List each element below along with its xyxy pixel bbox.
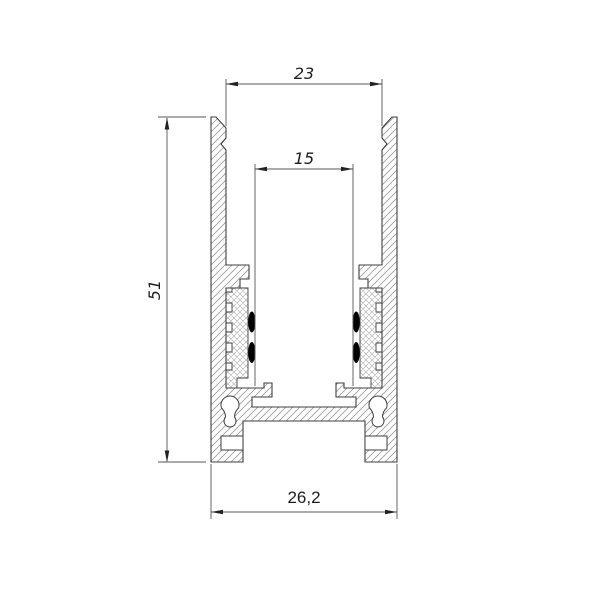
- dimension-bottom-width: 26,2: [211, 464, 397, 519]
- gasket-insert-left: [226, 288, 248, 388]
- gasket-insert-right: [360, 288, 382, 388]
- arrowhead-right-icon: [385, 510, 397, 515]
- profile-cross-section-drawing: 23 15 51 26,2: [0, 0, 600, 600]
- arrowhead-up-icon: [165, 118, 170, 130]
- technical-drawing-page: 23 15 51 26,2: [0, 0, 600, 600]
- dimension-height: 51: [145, 117, 206, 463]
- dim-label-bottom-width: 26,2: [287, 488, 320, 507]
- dim-label-top-width: 23: [294, 64, 314, 83]
- foot-notch-left: [221, 436, 243, 450]
- arrowhead-down-icon: [165, 451, 170, 463]
- dimension-slot-width: 15: [255, 149, 353, 386]
- arrowhead-right-icon: [370, 82, 382, 87]
- dimension-top-width: 23: [226, 64, 382, 126]
- arrowhead-left-icon: [211, 510, 223, 515]
- keyhole-screw-channel-left: [221, 396, 239, 427]
- dim-label-height: 51: [145, 280, 164, 300]
- clamp-pad-left-lower: [248, 342, 255, 363]
- arrowhead-left-icon: [226, 82, 238, 87]
- foot-notch-right: [365, 436, 387, 450]
- arrowhead-right-icon: [341, 167, 353, 172]
- dim-label-slot-width: 15: [294, 149, 314, 168]
- clamp-pad-right-upper: [353, 312, 360, 333]
- arrowhead-left-icon: [255, 167, 267, 172]
- clamp-pad-left-upper: [248, 312, 255, 333]
- clamp-pad-right-lower: [353, 342, 360, 363]
- keyhole-screw-channel-right: [369, 396, 387, 427]
